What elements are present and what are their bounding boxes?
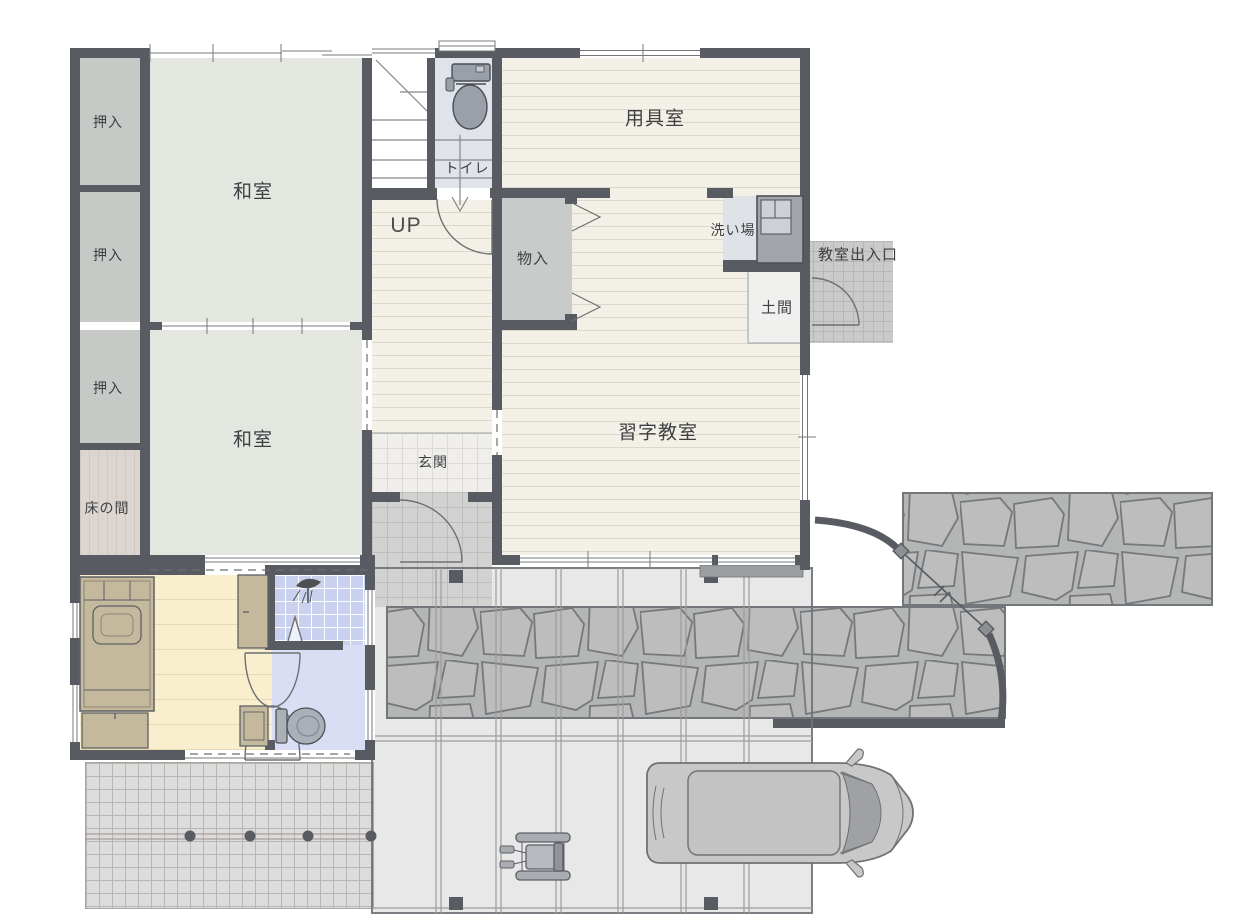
sliding-door-top [282, 48, 372, 58]
label-classroom-entrance: 教室出入口 [818, 244, 898, 265]
label-stairs-up: UP [390, 214, 421, 238]
label-toilet: トイレ [445, 158, 490, 178]
label-closet-3: 押入 [93, 378, 123, 398]
label-calligraphy-classroom: 習字教室 [618, 418, 698, 445]
label-closet-2: 押入 [93, 245, 123, 265]
label-washing-area: 洗い場 [711, 220, 756, 240]
flagstone-path [387, 493, 1212, 728]
label-storage: 物入 [517, 248, 549, 269]
plan-linework [0, 0, 1240, 920]
wheelchair-icon [500, 833, 570, 880]
garden-wall [773, 719, 1005, 728]
bed-icon [80, 577, 154, 711]
storage-chevrons [572, 203, 600, 321]
window-washitsu2-bottom [205, 555, 360, 565]
window-toilet-top [439, 41, 495, 51]
classroom-entrance-door-arc [812, 278, 859, 325]
terrace-fence [85, 831, 377, 842]
genkan-door-arc [400, 500, 462, 562]
gate-arc-icon [815, 520, 898, 549]
label-equipment-room: 用具室 [625, 104, 685, 131]
engawa-step [700, 565, 803, 577]
car-icon [647, 749, 913, 877]
washroom-toilet-icon [276, 708, 325, 744]
window-equipment-top [580, 44, 700, 62]
window-stairs-top [372, 48, 435, 58]
sink-icon [757, 196, 803, 263]
floor-plan: 押入 押入 押入 和室 和室 床の間 トイレ UP 用具室 物入 洗い場 教室出… [0, 0, 1240, 920]
toilet-icon [446, 64, 490, 129]
toilet-door-arc [437, 199, 492, 254]
label-tokonoma: 床の間 [85, 498, 130, 518]
label-closet-1: 押入 [93, 112, 123, 132]
label-washitsu-2: 和室 [233, 425, 273, 452]
window-washitsu1-top [150, 44, 282, 62]
label-washitsu-1: 和室 [233, 177, 273, 204]
cabinet [82, 713, 148, 748]
window-classroom-right [798, 375, 816, 500]
label-genkan: 玄関 [418, 452, 448, 472]
shower-icon [293, 579, 321, 603]
label-doma: 土間 [761, 297, 793, 318]
shower-door [288, 617, 302, 641]
wardrobe [238, 575, 268, 648]
washstand [240, 706, 268, 746]
fusuma-partition [162, 318, 350, 334]
